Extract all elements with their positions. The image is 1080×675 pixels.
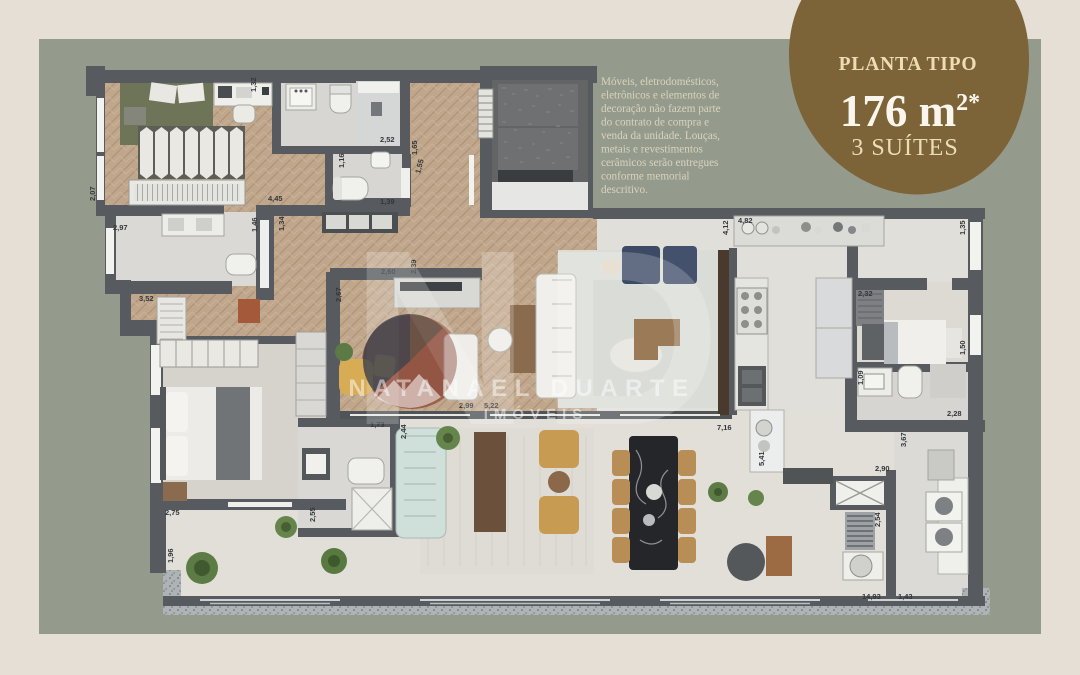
svg-text:4,82: 4,82 (738, 216, 753, 225)
svg-text:2,75: 2,75 (165, 508, 180, 517)
svg-text:1,09: 1,09 (856, 370, 865, 385)
svg-text:1,50: 1,50 (958, 340, 967, 355)
svg-text:IMÓVEIS: IMÓVEIS (484, 405, 589, 423)
svg-text:1,96: 1,96 (166, 548, 175, 563)
svg-text:2,28: 2,28 (947, 409, 962, 418)
svg-text:2,97: 2,97 (113, 223, 128, 232)
svg-text:2,90: 2,90 (875, 464, 890, 473)
svg-text:1,43: 1,43 (898, 592, 913, 601)
svg-text:2,55: 2,55 (308, 507, 317, 522)
svg-text:2,67: 2,67 (334, 287, 343, 302)
svg-text:3,52: 3,52 (139, 294, 154, 303)
svg-text:1,65: 1,65 (410, 140, 419, 155)
svg-text:1,16: 1,16 (337, 153, 346, 168)
svg-text:2,32: 2,32 (858, 289, 873, 298)
svg-text:1,35: 1,35 (958, 220, 967, 235)
svg-text:PLANTA TIPO: PLANTA TIPO (839, 54, 978, 75)
svg-text:1,32: 1,32 (249, 77, 258, 92)
svg-text:1,34: 1,34 (277, 216, 286, 231)
svg-text:5,41: 5,41 (757, 451, 766, 466)
svg-text:2,52: 2,52 (380, 135, 395, 144)
svg-text:NATANAEL DUARTE: NATANAEL DUARTE (348, 375, 695, 402)
svg-text:3,67: 3,67 (899, 432, 908, 447)
svg-text:2,07: 2,07 (88, 186, 97, 201)
svg-text:4,45: 4,45 (268, 194, 283, 203)
svg-text:1,46: 1,46 (250, 217, 259, 232)
svg-text:2,54: 2,54 (873, 512, 882, 527)
svg-text:14,93: 14,93 (862, 592, 881, 601)
svg-text:3 SUÍTES: 3 SUÍTES (851, 135, 958, 161)
